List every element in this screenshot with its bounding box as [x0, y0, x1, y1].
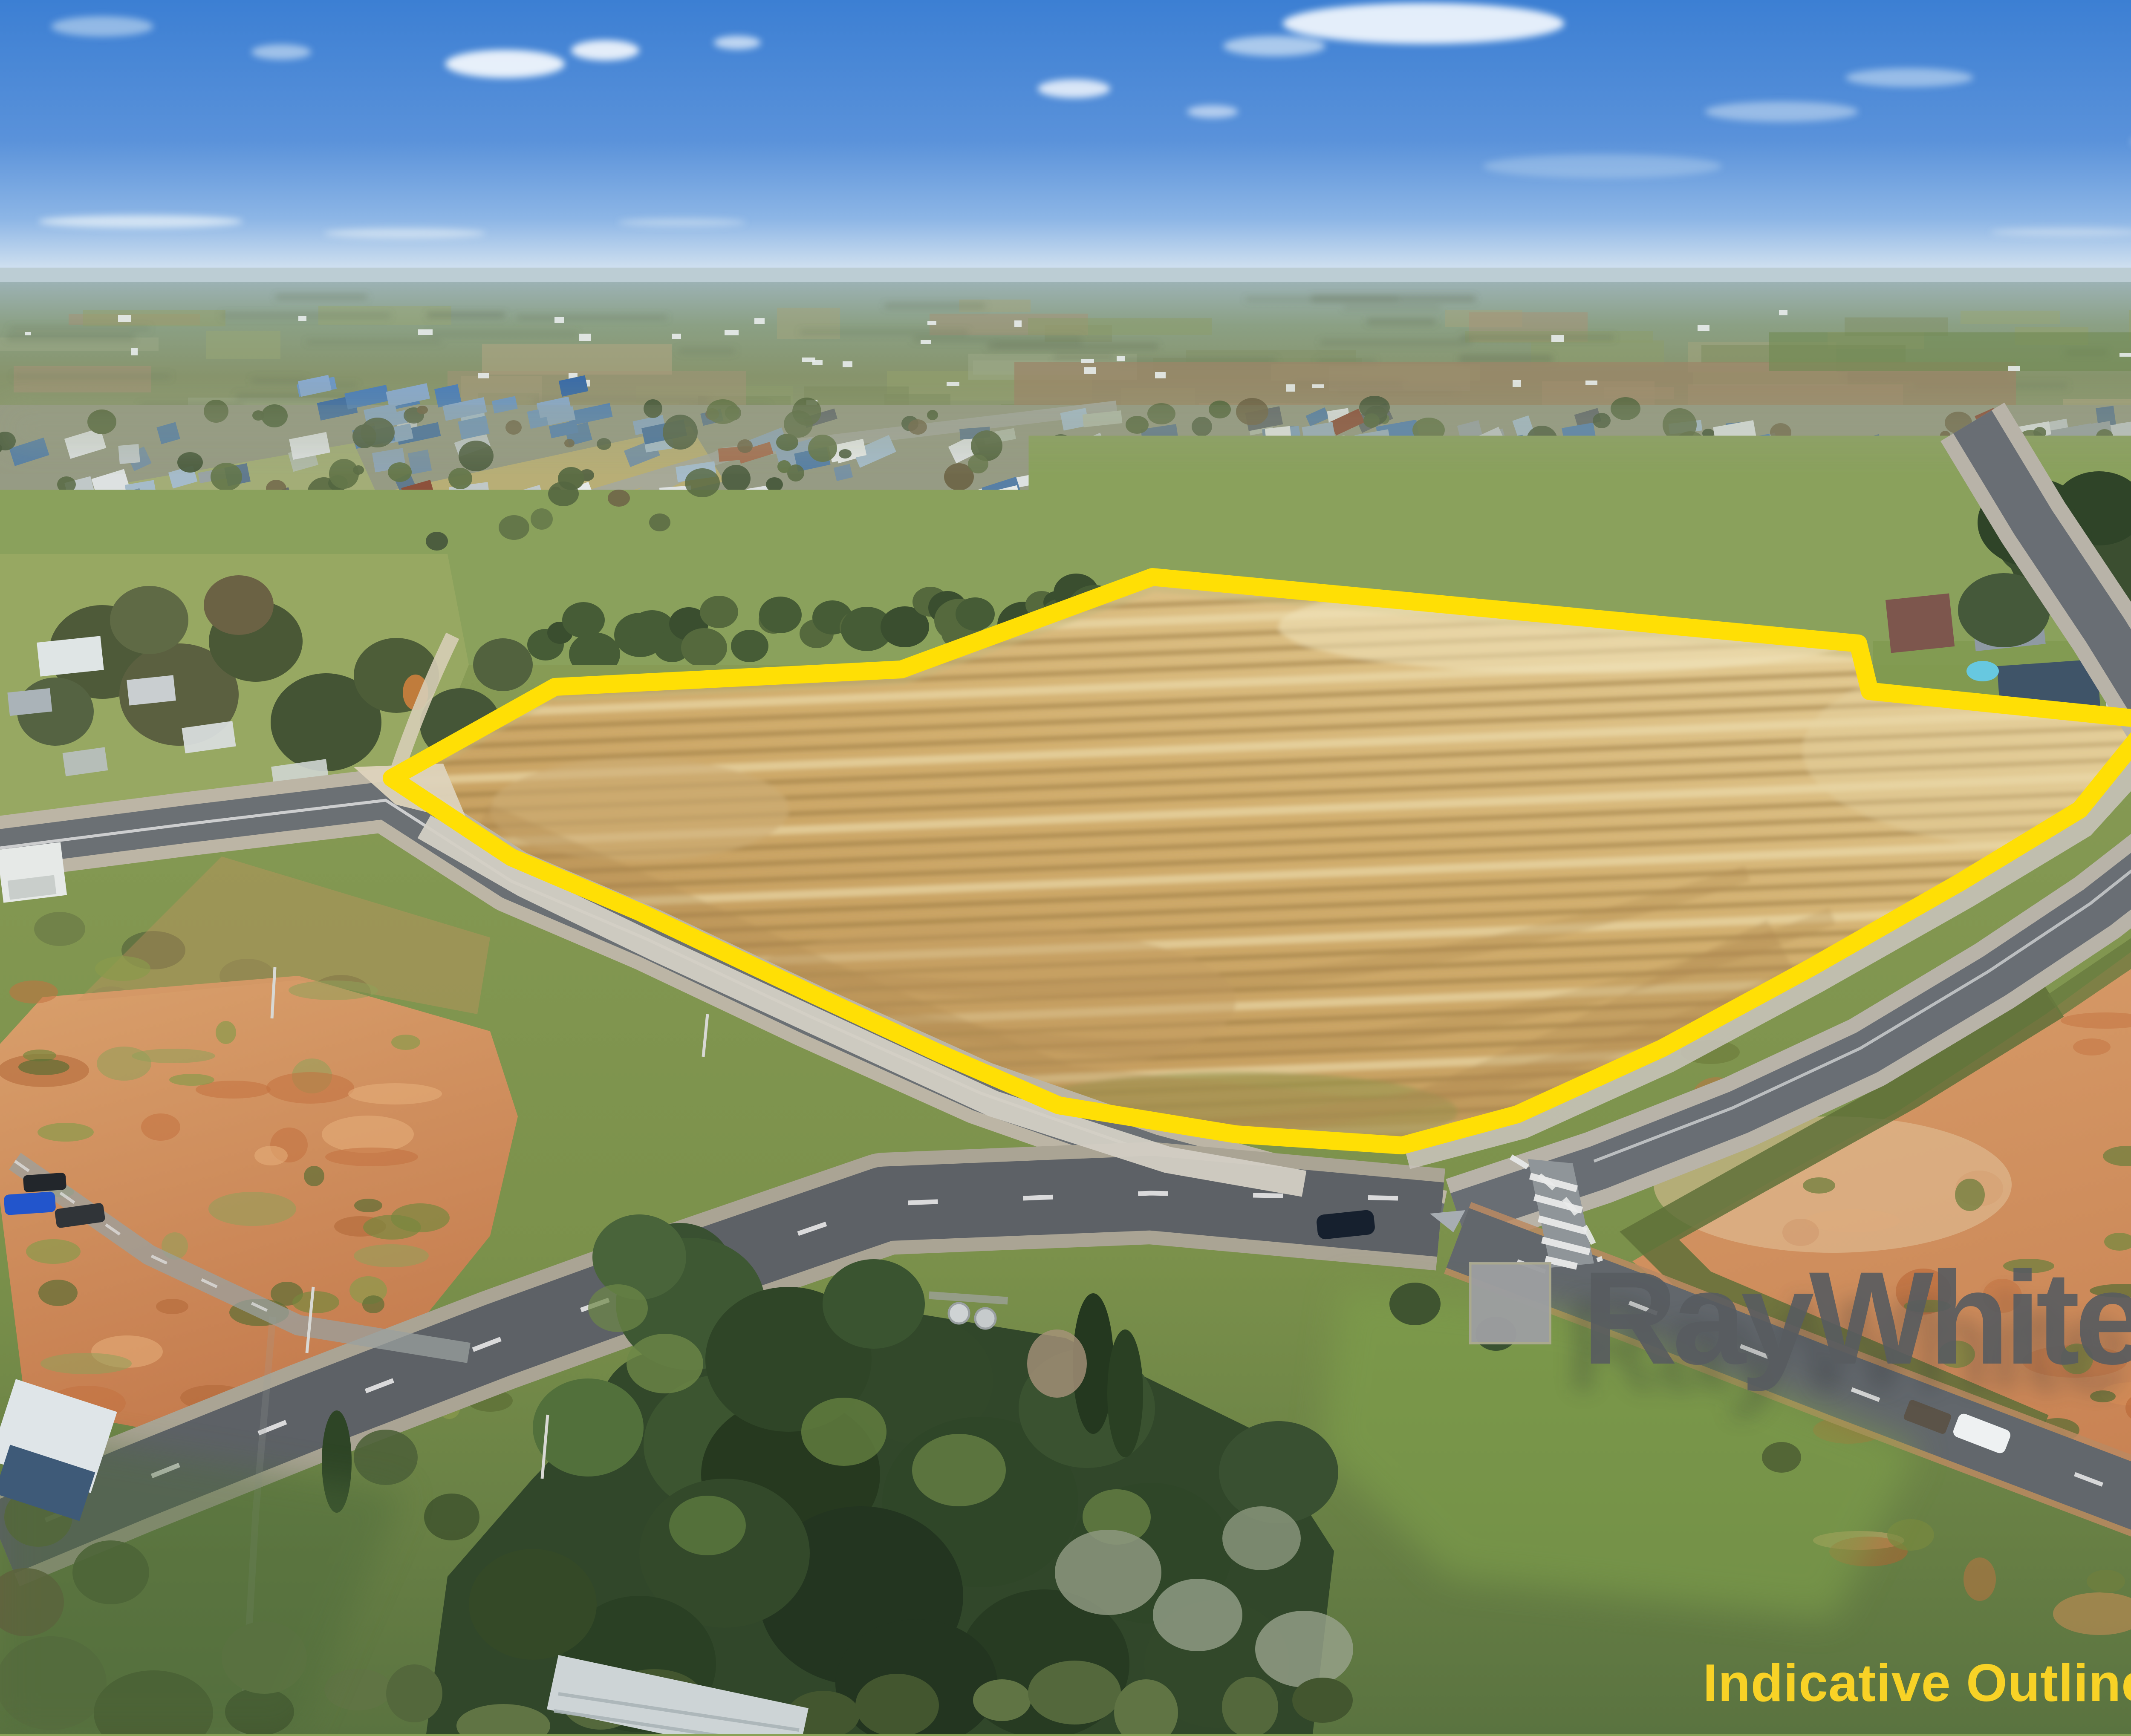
svg-text:RayWhite: RayWhite [1582, 1244, 2131, 1393]
svg-text:Indicative Outline Only: Indicative Outline Only [1703, 1654, 2131, 1713]
